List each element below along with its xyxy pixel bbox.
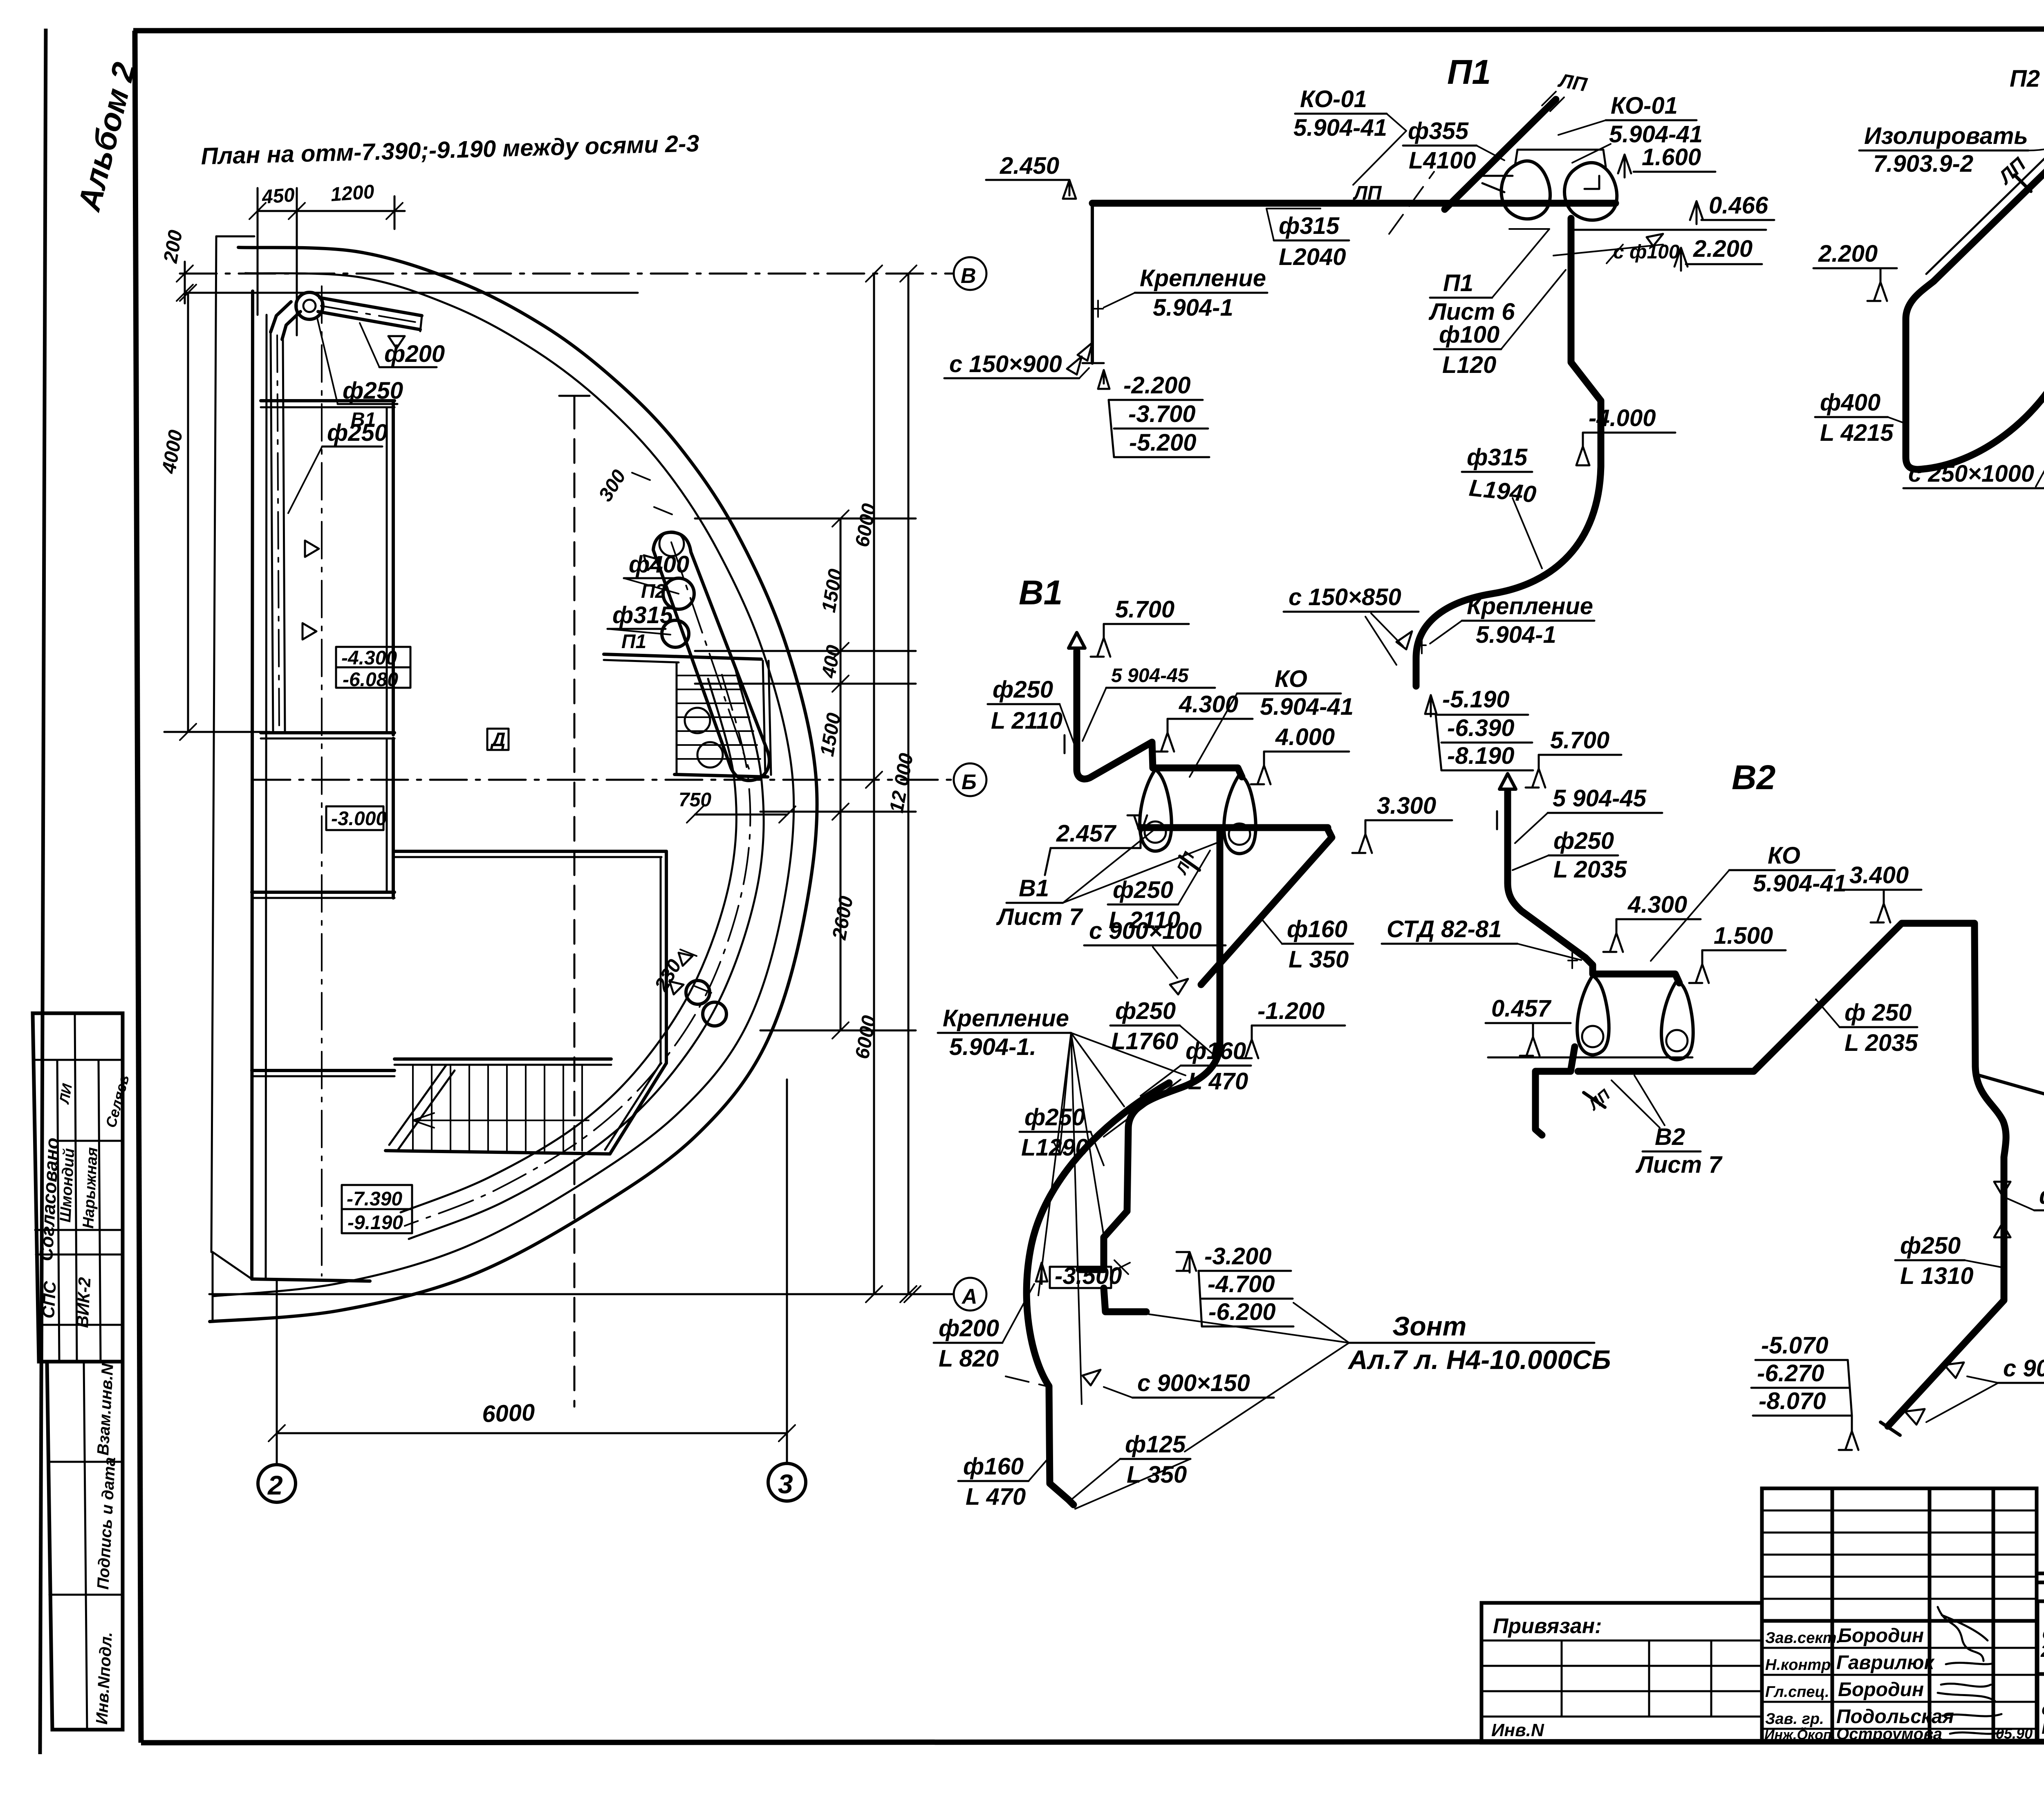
svg-text:ф125: ф125 [1125,1431,1186,1458]
svg-text:200-1200м³/ч напором 12-27м с: 200-1200м³/ч напором 12-27м с [2040,1641,2044,1661]
svg-text:с 250×1000: с 250×1000 [1908,460,2034,487]
svg-text:Бородин: Бородин [1838,1625,1924,1647]
svg-text:5.904-41: 5.904-41 [1260,693,1354,720]
svg-text:2.457: 2.457 [1056,820,1117,847]
svg-text:7.903.9-2: 7.903.9-2 [1873,150,1973,177]
svg-text:с 900×100: с 900×100 [2003,1355,2044,1382]
svg-text:5.904-1: 5.904-1 [1476,622,1556,648]
svg-text:L 470: L 470 [966,1483,1026,1510]
svg-text:2.200: 2.200 [1693,236,1753,262]
svg-text:Н.контр.: Н.контр. [1765,1656,1835,1674]
svg-text:1200: 1200 [330,181,375,206]
svg-text:ф160: ф160 [963,1453,1024,1480]
svg-text:-3.700: -3.700 [1128,401,1195,427]
svg-text:L 2110: L 2110 [991,707,1062,734]
svg-text:осями 2-3. Схемы систем П1,П2;: осями 2-3. Схемы систем П1,П2; [2042,1699,2044,1719]
svg-text:Зонт: Зонт [1392,1311,1466,1341]
svg-text:3.300: 3.300 [1377,792,1436,819]
svg-text:L2040: L2040 [1279,244,1346,270]
svg-text:Гл.спец.: Гл.спец. [1765,1683,1829,1701]
svg-text:L1760: L1760 [1111,1028,1178,1055]
svg-text:5.904-1: 5.904-1 [1153,294,1233,321]
svg-text:-4.700: -4.700 [1208,1271,1275,1297]
svg-text:3: 3 [778,1469,793,1499]
svg-text:5.700: 5.700 [1115,596,1174,623]
svg-text:L 1310: L 1310 [1900,1263,1974,1289]
svg-text:Лист 7: Лист 7 [996,904,1083,930]
svg-text:2.200: 2.200 [1818,240,1878,267]
svg-text:0.457: 0.457 [1491,995,1552,1022]
svg-text:СТД 82-81: СТД 82-81 [1387,916,1502,943]
svg-text:-6.200: -6.200 [1208,1299,1275,1325]
svg-text:станция производительностью: станция производительностью [2042,1623,2044,1643]
svg-text:с 900×150: с 900×150 [1137,1370,1250,1396]
svg-text:Изолировать: Изолировать [1864,123,2028,149]
svg-text:КО: КО [1768,842,1800,869]
svg-text:-5.070: -5.070 [1761,1332,1828,1359]
svg-text:-8.070: -8.070 [1759,1388,1826,1414]
svg-text:-5.190: -5.190 [1442,686,1509,713]
svg-text:-6.080: -6.080 [343,669,398,691]
svg-text:с 150×850: с 150×850 [1289,584,1401,610]
svg-text:ЛП: ЛП [1353,182,1382,204]
svg-text:-1.200: -1.200 [1257,998,1325,1024]
svg-text:ф 250: ф 250 [1845,999,1912,1026]
svg-text:Бородин: Бородин [1838,1679,1924,1701]
svg-text:2: 2 [267,1470,283,1500]
svg-text:П2 (для заглубления): П2 (для заглубления) [2010,65,2044,92]
svg-text:-4.300: -4.300 [341,647,397,669]
svg-text:Остроумова: Остроумова [1836,1725,1942,1743]
svg-text:Лист 7: Лист 7 [1635,1151,1723,1178]
svg-text:В2: В2 [1655,1124,1685,1150]
svg-text:5.700: 5.700 [1550,727,1609,754]
svg-text:ф250: ф250 [993,676,1053,703]
svg-text:Инв.N: Инв.N [1491,1720,1544,1740]
svg-text:СПС: СПС [38,1281,60,1319]
svg-text:L 2035: L 2035 [1553,856,1627,883]
svg-text:П1: П1 [1443,270,1473,296]
svg-text:L 4215: L 4215 [1820,420,1894,446]
svg-text:-6.390: -6.390 [1447,715,1514,741]
svg-text:-5.200: -5.200 [1129,429,1196,456]
svg-text:L 470: L 470 [1188,1068,1248,1095]
svg-text:Привязан:: Привязан: [1493,1614,1602,1638]
svg-text:-3.200: -3.200 [1204,1243,1271,1270]
svg-text:-9.190: -9.190 [347,1212,403,1234]
svg-text:Крепление: Крепление [1467,593,1593,619]
svg-text:3.400: 3.400 [1849,862,1909,889]
svg-text:В1: В1 [1019,875,1049,902]
svg-text:ф315: ф315 [1467,444,1528,471]
svg-text:4.300: 4.300 [1179,691,1238,718]
svg-text:5.904-1.: 5.904-1. [949,1034,1036,1060]
svg-text:В1: В1 [1019,573,1062,612]
svg-text:КО: КО [1275,666,1307,692]
svg-text:ф200: ф200 [939,1315,999,1342]
svg-text:L 350: L 350 [1289,946,1349,973]
svg-text:6000: 6000 [482,1399,535,1427]
svg-text:ф200: ф200 [384,341,445,367]
svg-text:ф400: ф400 [1820,389,1880,416]
svg-text:L 2035: L 2035 [1845,1030,1918,1056]
svg-text:-6.270: -6.270 [1757,1360,1824,1387]
svg-text:ф250: ф250 [1553,828,1614,854]
svg-text:П1: П1 [1447,53,1491,91]
svg-text:450: 450 [261,184,296,208]
svg-text:ВИК-2: ВИК-2 [72,1277,94,1328]
svg-text:-8.190: -8.190 [1447,743,1514,769]
svg-text:5 904-45: 5 904-45 [1553,785,1647,812]
svg-text:-2.200: -2.200 [1123,372,1190,399]
svg-text:А: А [961,1285,977,1308]
svg-text:L 820: L 820 [939,1345,999,1372]
svg-text:L120: L120 [1442,352,1496,378]
svg-text:Д: Д [490,729,506,751]
svg-text:1.600: 1.600 [1642,144,1701,171]
svg-text:с 900×100: с 900×100 [1089,918,1202,944]
svg-text:5 904-45: 5 904-45 [1111,665,1189,687]
svg-text:ф100: ф100 [1439,321,1499,348]
svg-text:ф400: ф400 [629,551,689,578]
svg-text:1.500: 1.500 [1714,922,1773,949]
svg-text:П1: П1 [621,631,646,653]
svg-text:Б: Б [961,770,977,794]
svg-text:с 150×900: с 150×900 [949,351,1062,377]
svg-text:-3.000: -3.000 [331,808,387,830]
svg-text:L 350: L 350 [1127,1461,1187,1488]
svg-text:Крепление: Крепление [1140,265,1266,292]
svg-text:ф160: ф160 [1186,1038,1246,1064]
svg-text:-3.500: -3.500 [1055,1263,1122,1289]
svg-text:ф250: ф250 [343,377,403,404]
svg-text:05.90: 05.90 [1996,1725,2033,1742]
svg-text:2.450: 2.450 [1000,153,1059,179]
svg-text:ф250: ф250 [1115,998,1176,1024]
svg-text:ф355: ф355 [1408,118,1469,144]
svg-text:Подольская: Подольская [1836,1706,1954,1728]
svg-text:-4.000: -4.000 [1589,405,1656,431]
svg-text:5.904-41: 5.904-41 [1753,870,1847,897]
svg-text:ф250: ф250 [327,420,388,446]
svg-text:В1;В2;Ве1.: В1;В2;Ве1. [2042,1718,2044,1738]
svg-text:ф250: ф250 [1024,1104,1085,1131]
svg-text:Крепление: Крепление [943,1005,1069,1032]
svg-text:В2: В2 [1732,758,1775,797]
svg-text:Гаврилюк: Гаврилюк [1836,1652,1935,1674]
svg-text:Ал.7 л. Н4-10.000СБ: Ал.7 л. Н4-10.000СБ [1347,1344,1611,1375]
svg-text:L4100: L4100 [1409,147,1476,174]
svg-text:4.300: 4.300 [1627,891,1687,918]
svg-text:750: 750 [679,789,711,811]
svg-text:Инж.Öкоп.: Инж.Öкоп. [1764,1727,1836,1743]
svg-text:Зав.сект.: Зав.сект. [1765,1629,1840,1647]
svg-text:КО-01: КО-01 [1611,92,1678,119]
svg-text:ф160: ф160 [1287,916,1347,943]
svg-text:В: В [961,264,976,288]
svg-text:КО-01: КО-01 [1300,86,1367,112]
svg-text:ф250: ф250 [1900,1232,1961,1259]
svg-text:Зав. гр.: Зав. гр. [1765,1710,1824,1728]
svg-text:0.466: 0.466 [1709,192,1768,219]
svg-text:ф200: ф200 [2039,1183,2044,1209]
svg-text:ф315: ф315 [612,602,673,628]
svg-text:4.000: 4.000 [1275,724,1335,750]
svg-text:5.904-41: 5.904-41 [1293,114,1387,141]
svg-text:ф250: ф250 [1113,877,1173,903]
svg-text:ф315: ф315 [1279,213,1340,239]
svg-text:-7.390: -7.390 [347,1188,402,1210]
